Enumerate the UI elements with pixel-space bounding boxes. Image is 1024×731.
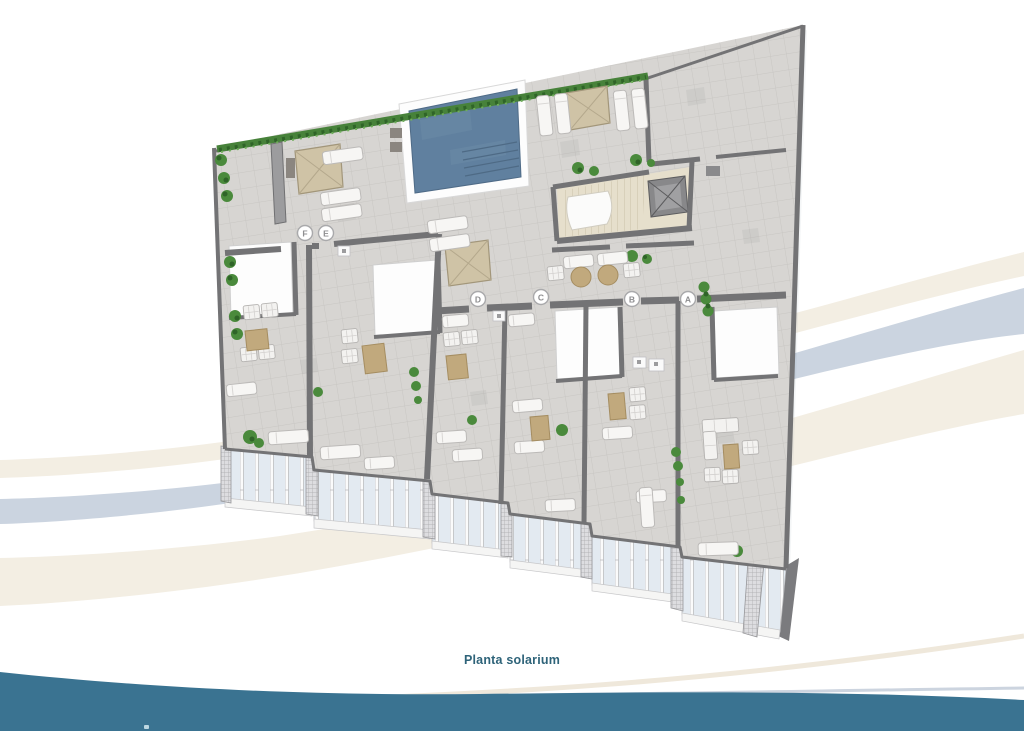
chair xyxy=(461,329,478,345)
sun-lounger xyxy=(320,444,361,460)
sun-lounger xyxy=(514,440,545,454)
chair xyxy=(261,302,278,318)
teal-wave xyxy=(0,672,1024,731)
chair xyxy=(623,262,640,278)
sun-lounger xyxy=(226,382,257,397)
table xyxy=(723,444,740,469)
skylight-unit-e xyxy=(373,260,439,336)
sun-lounger xyxy=(639,487,655,528)
chair xyxy=(722,469,739,484)
svg-text:B: B xyxy=(629,295,635,305)
bench xyxy=(597,251,628,266)
pool-side-seat xyxy=(390,142,402,152)
chair xyxy=(243,304,260,320)
parasol-bench xyxy=(286,158,295,178)
sun-lounger xyxy=(512,398,543,413)
chair xyxy=(742,440,759,455)
wall-pier xyxy=(221,446,231,503)
sun-lounger xyxy=(698,542,738,556)
duct xyxy=(706,166,720,176)
table xyxy=(245,329,269,351)
table xyxy=(362,343,387,373)
sun-lounger xyxy=(545,498,576,512)
elevator xyxy=(648,176,688,217)
svg-text:D: D xyxy=(475,295,481,305)
sun-lounger xyxy=(602,426,633,440)
table xyxy=(530,415,550,440)
round-table xyxy=(598,265,618,285)
page-title: Planta solarium xyxy=(464,653,560,667)
chair xyxy=(341,328,358,344)
sun-lounger xyxy=(268,429,309,445)
unit-badge-d: D xyxy=(471,292,486,307)
sun-lounger xyxy=(364,456,395,470)
svg-text:E: E xyxy=(323,229,329,239)
sun-lounger xyxy=(436,430,467,444)
chair xyxy=(629,387,646,402)
unit-badge-f: F xyxy=(298,226,313,241)
unit-badge-b: B xyxy=(625,292,640,307)
unit-badge-c: C xyxy=(534,290,549,305)
chair xyxy=(704,467,721,482)
round-table xyxy=(571,267,591,287)
stair-landing xyxy=(567,191,612,230)
unit-badge-a: A xyxy=(681,292,696,307)
sun-lounger xyxy=(442,314,469,328)
solarium-plan-page: F E D C B A Planta solarium xyxy=(0,0,1024,731)
table xyxy=(608,393,626,420)
sun-lounger xyxy=(508,313,535,327)
logo-fragment xyxy=(144,725,149,729)
bench xyxy=(563,254,594,269)
table xyxy=(446,354,468,380)
chair xyxy=(341,348,358,364)
svg-text:C: C xyxy=(538,293,544,303)
pool-side-seat xyxy=(390,128,402,138)
unit-badge-e: E xyxy=(319,226,334,241)
sun-lounger xyxy=(452,448,483,462)
chair xyxy=(629,405,646,420)
skylight-unit-a xyxy=(714,307,779,378)
svg-text:F: F xyxy=(302,229,307,239)
svg-text:A: A xyxy=(685,295,691,305)
chair xyxy=(547,265,564,281)
chair xyxy=(443,331,460,347)
